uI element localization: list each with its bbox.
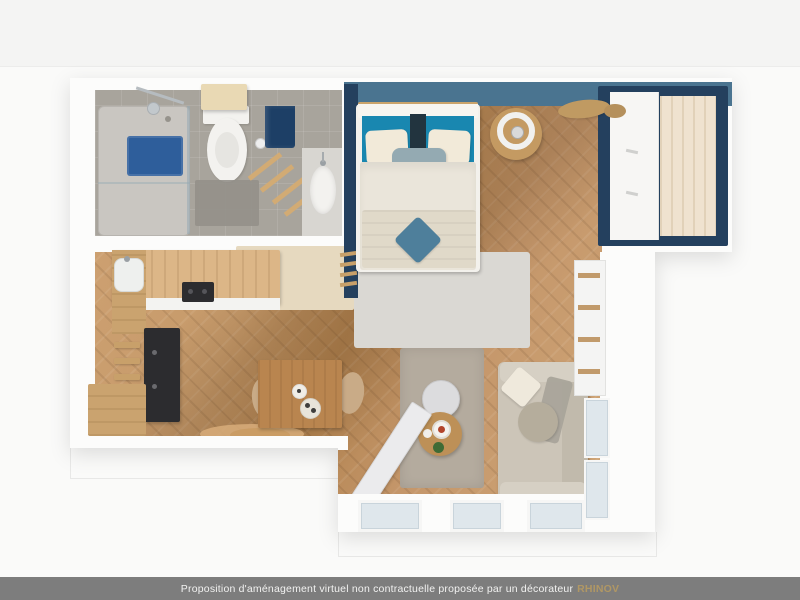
bathroom-floor xyxy=(95,90,342,236)
lamp-base xyxy=(511,126,524,139)
caption-bar: Proposition d'aménagement virtuel non co… xyxy=(0,577,800,600)
wall-cabinet xyxy=(201,84,247,110)
floorplan-canvas: Proposition d'aménagement virtuel non co… xyxy=(0,0,800,600)
drawer-handle xyxy=(626,149,638,154)
toilet-bowl xyxy=(207,118,247,182)
appliance-knob xyxy=(152,384,157,389)
wardrobe-panel xyxy=(660,96,716,236)
plate-dot xyxy=(305,403,310,408)
hanging-towel xyxy=(265,106,295,148)
shower-glass-panel xyxy=(187,106,190,234)
tall-appliance-unit xyxy=(144,328,180,422)
cooktop xyxy=(182,282,214,302)
kitchen-faucet xyxy=(124,256,130,262)
kitchen-bottom-wall xyxy=(70,436,348,450)
wall-shelf xyxy=(114,358,140,364)
shower-drain xyxy=(165,116,171,122)
toilet-seat xyxy=(215,132,239,168)
side-window xyxy=(584,460,610,520)
sofa-round-cushion xyxy=(518,402,558,442)
plate-dot xyxy=(311,408,316,413)
appliance-knob xyxy=(152,350,157,355)
tray-cup xyxy=(423,429,432,438)
cooktop-burner xyxy=(188,289,193,294)
sink-basin xyxy=(310,166,336,214)
window xyxy=(527,500,585,532)
window xyxy=(358,500,422,532)
shower-head xyxy=(147,102,160,115)
cooktop-burner xyxy=(202,289,207,294)
brand-name: RHINOV xyxy=(577,583,619,595)
bookshelf-shelf xyxy=(578,369,600,374)
bath-mat xyxy=(195,180,259,226)
kitchen-low-cabinet xyxy=(88,384,146,436)
wall-shelf xyxy=(114,342,140,348)
wall-shelf xyxy=(114,374,140,380)
bookshelf xyxy=(574,260,606,396)
bookshelf-shelf xyxy=(578,305,600,310)
shower-mat xyxy=(127,136,183,176)
bookshelf-shelf xyxy=(578,273,600,278)
side-window xyxy=(584,398,610,458)
drawer-handle xyxy=(626,191,638,196)
apartment-footprint xyxy=(0,0,800,600)
tray-plant xyxy=(433,442,444,453)
bookshelf-shelf xyxy=(578,337,600,342)
faucet-spout xyxy=(322,152,324,162)
shower-arm xyxy=(136,86,184,104)
plate-dot xyxy=(297,389,301,393)
window xyxy=(450,500,504,532)
shower-glass-edge xyxy=(98,182,190,184)
vanity-counter xyxy=(302,148,342,236)
plate-small xyxy=(292,384,307,399)
tray-plate xyxy=(432,420,451,439)
apartment-floorplan xyxy=(0,0,800,600)
caption-text: Proposition d'aménagement virtuel non co… xyxy=(181,583,573,595)
dining-table xyxy=(258,360,342,428)
kitchen-sink xyxy=(114,258,144,292)
wall-bench-small xyxy=(604,104,626,118)
tray-plate-food xyxy=(438,426,445,433)
plate-large xyxy=(300,398,321,419)
